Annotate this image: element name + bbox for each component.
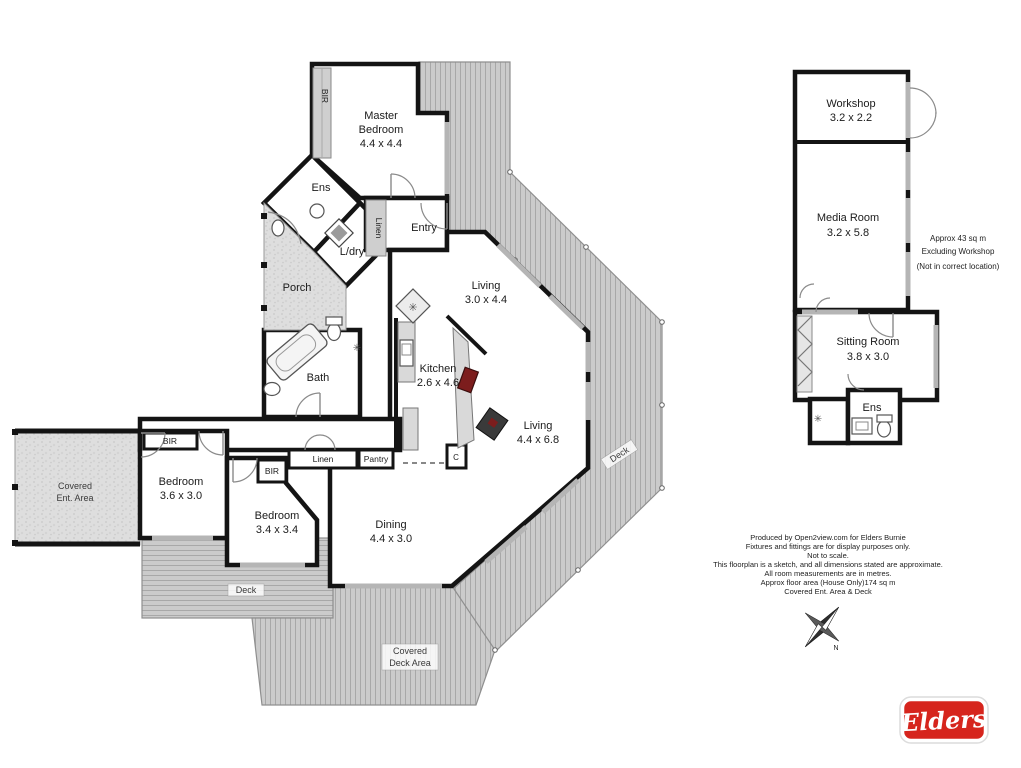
elders-logo-text: Elders xyxy=(899,704,988,738)
label-covered-deck-1: Covered xyxy=(393,646,427,656)
label-master-1: Master xyxy=(364,110,398,122)
compass-north-label: N xyxy=(833,645,838,652)
basin-icon-bath xyxy=(264,383,280,396)
label-living1: Living xyxy=(472,280,501,292)
floorplan-page: ✳ ✳ xyxy=(0,0,1021,768)
elders-logo: Elders xyxy=(899,697,988,743)
label-bedroom1-dims: 3.6 x 3.0 xyxy=(160,490,202,502)
light-icon-outbuilding: ✳ xyxy=(814,414,822,425)
label-kitchen: Kitchen xyxy=(420,363,457,375)
compass-rose: N xyxy=(788,593,855,661)
label-dining: Dining xyxy=(375,519,406,531)
label-living2: Living xyxy=(524,420,553,432)
label-bir-bed2: BIR xyxy=(265,466,279,476)
label-kitchen-dims: 2.6 x 4.6 xyxy=(417,377,459,389)
label-living2-dims: 4.4 x 6.8 xyxy=(517,434,559,446)
label-sitting-dims: 3.8 x 3.0 xyxy=(847,351,889,363)
label-living1-dims: 3.0 x 4.4 xyxy=(465,294,507,306)
label-covered-ent-2: Ent. Area xyxy=(56,493,93,503)
disclaimer-line-6: Approx floor area (House Only)174 sq m xyxy=(761,578,896,587)
wardrobe-sitting xyxy=(797,316,812,392)
label-media-dims: 3.2 x 5.8 xyxy=(827,227,869,239)
vanity-icon-outbuilding xyxy=(852,418,872,434)
label-bath: Bath xyxy=(307,372,330,384)
label-deck-bottom: Deck xyxy=(236,585,257,595)
floorplan-svg: ✳ ✳ xyxy=(0,0,1021,768)
label-porch: Porch xyxy=(283,282,312,294)
label-ens: Ens xyxy=(312,182,331,194)
light-icon-bath: ✳ xyxy=(353,343,361,354)
label-dining-dims: 4.4 x 3.0 xyxy=(370,533,412,545)
toilet-icon-ens xyxy=(272,220,284,236)
label-closet-c: C xyxy=(453,453,459,462)
outbuilding-note-2: Excluding Workshop xyxy=(922,247,995,256)
label-covered-ent-1: Covered xyxy=(58,481,92,491)
disclaimer-line-2: Fixtures and fittings are for display pu… xyxy=(746,542,911,551)
disclaimer-line-3: Not to scale. xyxy=(807,551,849,560)
label-master-2: Bedroom xyxy=(359,124,404,136)
disclaimer-block: Produced by Open2view.com for Elders Bur… xyxy=(713,533,943,596)
label-workshop: Workshop xyxy=(826,98,875,110)
toilet-icon-bath xyxy=(328,324,341,341)
label-sitting: Sitting Room xyxy=(837,336,900,348)
outbuilding-note-3: (Not in correct location) xyxy=(917,262,1000,271)
label-linen-vertical: Linen xyxy=(374,218,384,239)
disclaimer-line-7: Covered Ent. Area & Deck xyxy=(784,587,872,596)
label-bedroom1: Bedroom xyxy=(159,476,204,488)
basin-icon-ens xyxy=(310,204,324,218)
kitchen-fan-icon: ✳ xyxy=(408,302,417,314)
disclaimer-line-4: This floorplan is a sketch, and all dime… xyxy=(713,560,943,569)
label-ldry: L/dry xyxy=(340,246,365,258)
label-bir-bed1: BIR xyxy=(163,436,177,446)
label-media: Media Room xyxy=(817,212,879,224)
label-linen: Linen xyxy=(313,454,334,464)
disclaimer-line-5: All room measurements are in metres. xyxy=(764,569,891,578)
label-master-dims: 4.4 x 4.4 xyxy=(360,138,402,150)
disclaimer-line-1: Produced by Open2view.com for Elders Bur… xyxy=(750,533,906,542)
label-ens-outbuilding: Ens xyxy=(863,402,882,414)
label-bedroom2: Bedroom xyxy=(255,510,300,522)
toilet-icon-outbuilding xyxy=(878,421,891,437)
label-entry: Entry xyxy=(411,222,437,234)
label-pantry: Pantry xyxy=(364,454,389,464)
label-covered-deck-2: Deck Area xyxy=(389,658,431,668)
label-bedroom2-dims: 3.4 x 3.4 xyxy=(256,524,298,536)
outbuilding-note-1: Approx 43 sq m xyxy=(930,234,986,243)
label-bir-master: BIR xyxy=(320,89,330,103)
kitchen-island xyxy=(403,408,418,450)
label-workshop-dims: 3.2 x 2.2 xyxy=(830,112,872,124)
outbuilding: ✳ xyxy=(795,72,937,443)
